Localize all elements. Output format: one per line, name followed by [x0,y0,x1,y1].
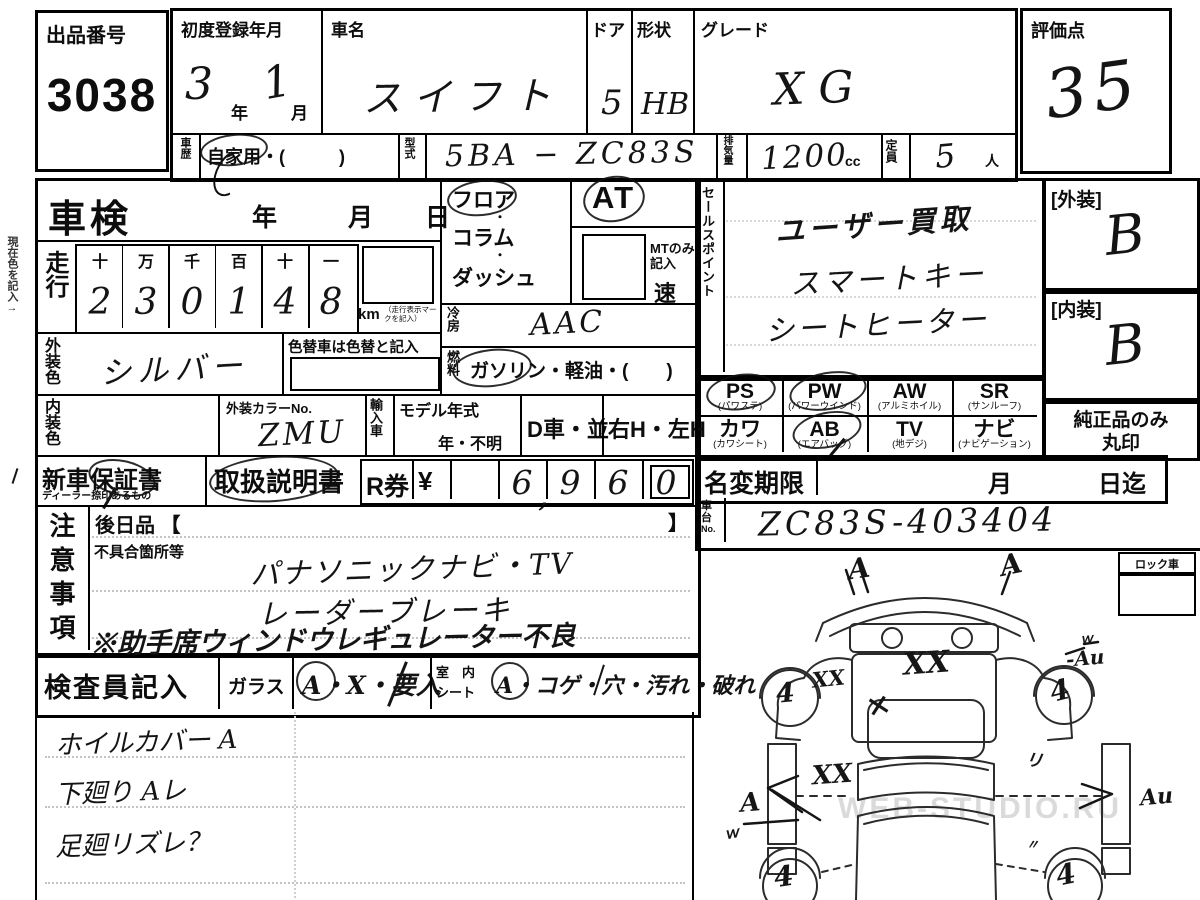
chassis-row: 車台 No. ZC83S-403404 [695,498,1200,551]
odo-note: （走行表示マークを記入） [384,305,438,323]
afterparts-label: 後日品 【 [95,509,181,538]
color-change-box [290,357,440,391]
seat-label-1: 室 内 [436,662,475,681]
odo-digit-1: 3 [123,282,169,323]
price-digit-2: 9 [546,463,594,502]
odometer-label: 走行 [42,250,66,298]
afterparts-close: 】 [668,507,688,536]
chassis-label-no: No. [701,524,716,534]
odo-col-4: 十 [262,248,308,272]
grade-value: XG [772,61,868,115]
equip-tv-name: (地デジ) [867,440,952,450]
shaken-label: 車検 [48,188,132,243]
exterior-grade-box: [外装] B [1042,178,1200,294]
ac-label: 冷房 [446,306,459,332]
modelcode-label: 型式 [403,137,414,159]
rticket-yen: ¥ [418,466,432,497]
rename-row: 名変期限 月 日迄 [695,455,1168,504]
shift-dash: ダッシュ [452,262,536,292]
car-damage-diagram [700,548,1200,900]
genuine-line-2: 丸印 [1045,428,1197,455]
doors-label: ドア [591,16,625,41]
seat-label-2: シート [436,682,475,701]
odo-digit-4: 4 [262,282,308,323]
equip-sr-code: SR [952,381,1037,402]
colorno-value: ZMU [257,414,347,455]
shape-label: 形状 [637,16,671,41]
shift-mt-box [582,234,646,300]
inspector-note-3: 足廻リズレ？ [54,821,211,863]
carname-value: スイフト [363,64,564,122]
modelcode-value: 5BA − ZC83S [445,135,699,174]
glass-a-circle [296,661,336,701]
firstreg-year: 3 [185,59,213,110]
inspector-label: 検査員記入 [44,666,189,705]
price-comma: , [538,475,549,514]
interior-grade-box: [内装] B [1042,288,1200,404]
rticket-strip: R券 ¥ 6 9 6 0 , [360,459,694,505]
price-digit-4: 0 [642,463,690,502]
shaken-day-unit: 日 [425,198,450,234]
handle-options: 右H・左H [608,412,706,444]
exterior-grade-label: [外装] [1051,185,1102,212]
ac-value: AAC [529,304,606,343]
equip-aw-name: (アルミホイル) [867,402,952,412]
chassis-label-top: 車台 [701,500,712,524]
odo-col-0: 十 [77,248,123,272]
odo-digit-5: 8 [308,282,354,323]
import-label: 輸入車 [369,398,382,437]
seats-value: 5 [933,136,957,176]
odo-unit: km [358,306,380,323]
lot-value: 3038 [38,68,166,122]
odo-col-3: 百 [216,248,262,272]
modelyear-value: 年・不明 [438,430,502,454]
score-box: 評価点 35 [1020,8,1172,174]
equip-aw-code: AW [867,381,952,402]
rename-month-unit: 月 [988,464,1012,499]
modelyear-label: モデル年式 [399,397,479,421]
interior-grade-label: [内装] [1051,295,1102,322]
chassis-value: ZC83S-403404 [758,499,1058,543]
score-value: 35 [1040,45,1146,135]
lot-label: 出品番号 [46,19,126,48]
stray-pen-mark [12,468,19,484]
top-table: 初度登録年月 3 年 1 月 車名 スイフト ドア 5 形状 HB グレード X… [170,8,1018,182]
intcolor-label: 内装色 [42,398,58,446]
firstreg-label: 初度登録年月 [181,16,283,41]
history-label: 車歴 [179,137,190,159]
equip-kawa-code: カワ [698,419,782,440]
defects-label: 不具合箇所等 [94,541,184,562]
shift-sep2: ・ [494,246,506,263]
sales-label: セールスポイント [701,186,714,298]
cautions-label: 注意事項 [48,512,74,648]
firstreg-year-unit: 年 [231,99,248,124]
equip-navi-code: ナビ [952,419,1037,440]
odometer-table: 十 万 千 百 十 一 2 3 0 1 4 8 [75,244,359,334]
disp-label: 排気量 [721,135,731,165]
odo-digit-0: 2 [77,282,123,323]
score-label: 評価点 [1031,17,1085,43]
rticket-label: R券 [366,467,409,503]
equip-navi-name: (ナビゲーション) [952,440,1037,450]
doors-value: 5 [601,83,623,123]
auction-sheet: 現在色を記入→ 出品番号 3038 評価点 35 初度登録年月 3 年 1 月 … [0,0,1200,900]
seats-label: 定員 [885,139,897,163]
shift-mt-note2: 記入 [650,253,676,272]
price-digit-3: 6 [594,463,642,502]
colorno-label: 外装カラーNo. [226,398,312,417]
extcolor-value: シルバー [99,340,249,393]
odo-digit-2: 0 [169,282,215,323]
grade-label: グレード [701,16,769,41]
firstreg-month-unit: 月 [291,99,308,124]
equip-tv-code: TV [867,419,952,440]
dcar-options: D車・並 [527,412,609,444]
equip-sr-name: (サンルーフ) [952,402,1037,412]
seats-unit: 人 [985,151,999,171]
equip-kawa-name: (カワシート) [698,440,782,450]
shaken-year-unit: 年 [252,198,277,234]
odo-mark-box [362,246,434,304]
extcolor-label: 外装色 [42,337,58,385]
disp-value: 1200 [760,137,849,177]
odo-col-2: 千 [169,248,215,272]
shape-value: HB [641,87,689,122]
lot-box: 出品番号 3038 [35,10,169,172]
interior-grade-value: B [1102,311,1148,378]
odo-col-5: 一 [308,248,354,272]
carname-label: 車名 [331,16,365,41]
chassis-label: 車台 No. [701,501,715,536]
rename-day-unit: 日迄 [1098,464,1146,499]
genuine-parts-box: 純正品のみ 丸印 [1042,398,1200,461]
glass-label: ガラス [228,672,285,699]
rename-label: 名変期限 [704,464,804,500]
firstreg-month: 1 [259,55,295,110]
seat-a-circle [491,662,529,700]
margin-note: 現在色を記入→ [6,236,17,314]
color-change-note: 色替車は色替と記入 [288,336,419,357]
exterior-grade-value: B [1102,201,1148,268]
disp-unit: cc [845,153,861,169]
shaken-month-unit: 月 [348,198,373,234]
odo-col-1: 万 [123,248,169,272]
odo-digit-3: 1 [216,282,262,323]
